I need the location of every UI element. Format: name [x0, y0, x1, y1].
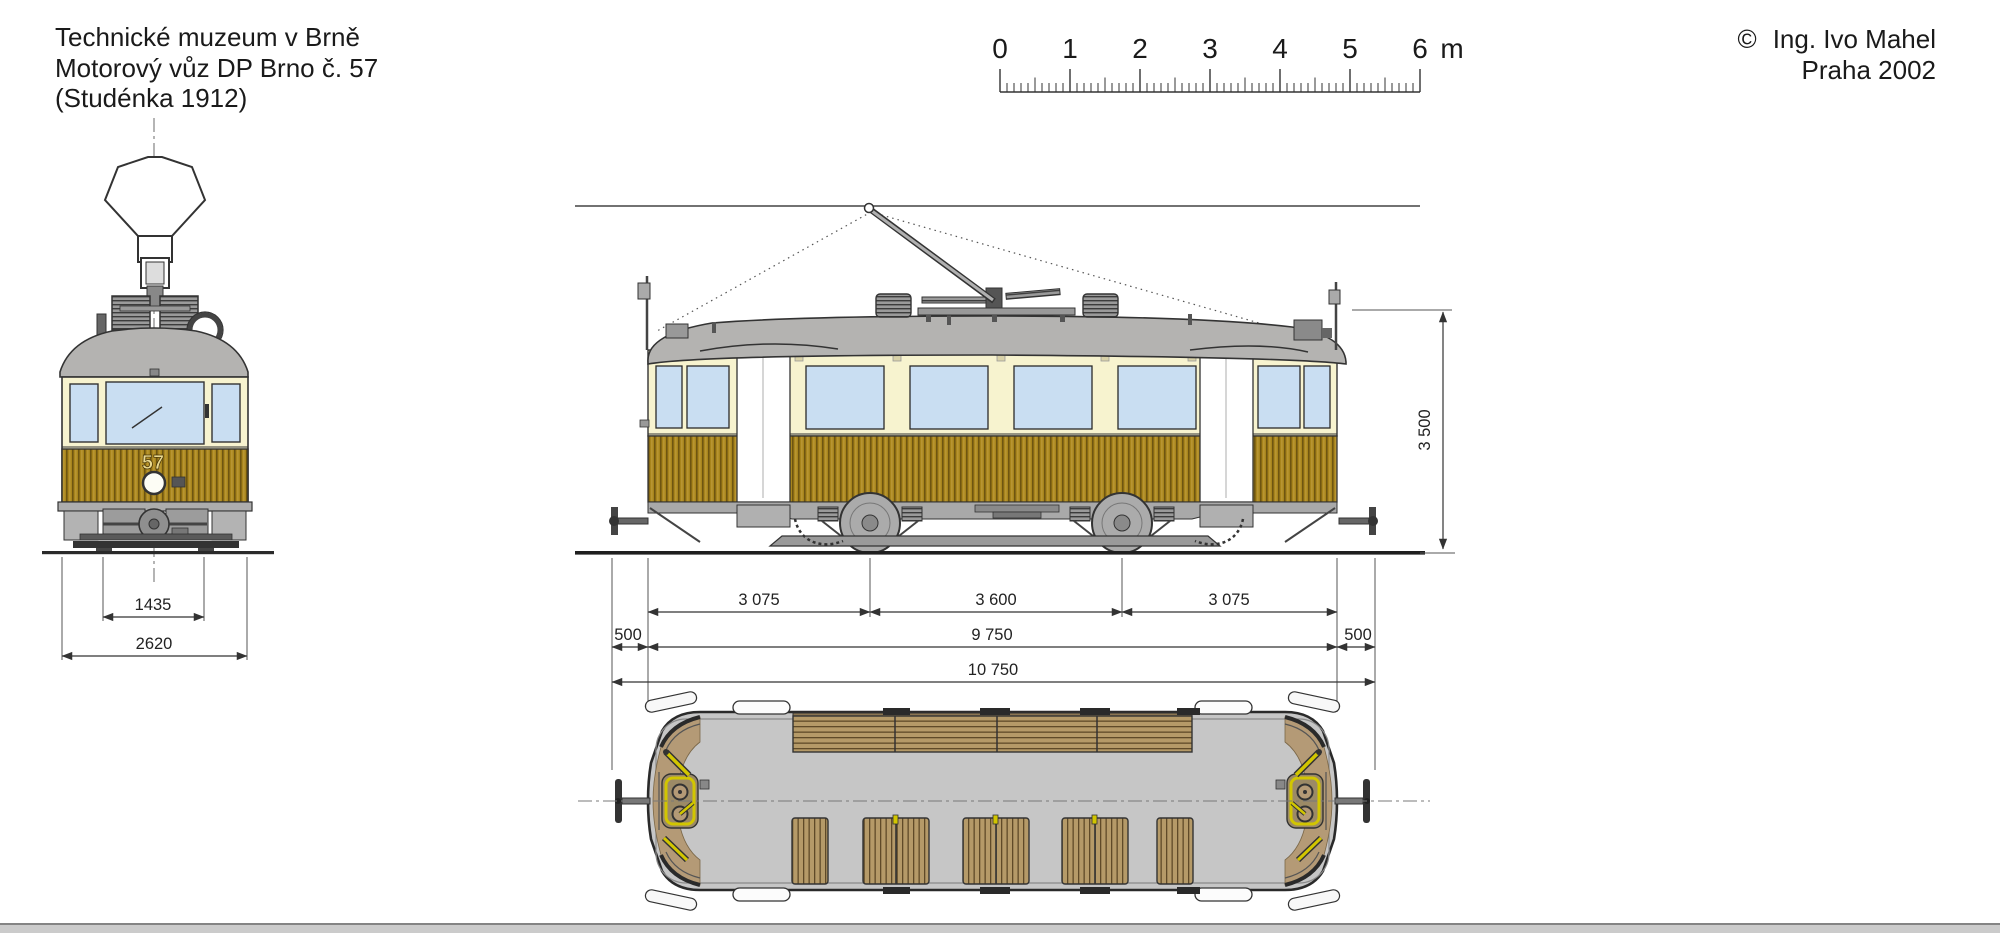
front-trolley-pole [105, 157, 205, 330]
ruler-unit: m [1440, 33, 1463, 64]
door-step-right [1200, 505, 1253, 527]
ruler-label-0: 0 [992, 33, 1008, 64]
dim-body-length: 9 750 [971, 626, 1012, 644]
door-handle [205, 404, 209, 418]
dim-coupling-left: 500 [614, 626, 642, 644]
ruler-label-3: 3 [1202, 33, 1218, 64]
front-windows [70, 382, 240, 444]
trolley-rope-left [657, 212, 871, 331]
corner-fender [644, 889, 697, 912]
stanchion-clip [1092, 815, 1097, 824]
jumper-socket [640, 420, 649, 427]
dim-track-gauge: 1435 [135, 596, 172, 614]
stanchion-clip [893, 815, 898, 824]
dim-height: 3 500 [1416, 409, 1434, 450]
ruler-ticks [1000, 69, 1420, 92]
trolley-wheel [865, 204, 874, 213]
sliding-door-leaf [733, 701, 790, 714]
trolley-pole [865, 204, 995, 302]
dim-rear-overhang: 3 075 [1208, 591, 1249, 609]
front-view: 57 [42, 118, 274, 582]
ruler-label-5: 5 [1342, 33, 1358, 64]
side-view [575, 204, 1425, 555]
dim-total-length: 10 750 [968, 661, 1018, 679]
side-doorway-left [737, 351, 790, 502]
height-dimension: 3 500 [1352, 310, 1455, 553]
door-step-left [737, 505, 790, 527]
rail-line [575, 551, 1425, 555]
scale-ruler: 0 1 2 3 4 5 6 m [992, 33, 1463, 92]
ruler-label-2: 2 [1132, 33, 1148, 64]
dim-coupling-right: 500 [1344, 626, 1372, 644]
front-ground-line [42, 551, 274, 554]
dim-front-overhang: 3 075 [738, 591, 779, 609]
front-undercarriage [64, 509, 246, 552]
stanchion-clip [993, 815, 998, 824]
window-bottom-edge [0, 923, 2000, 933]
ruler-label-4: 4 [1272, 33, 1288, 64]
tram-drawing: 0 1 2 3 4 5 6 m [0, 0, 2000, 933]
dim-body-width: 2620 [136, 635, 173, 653]
plan-view [578, 691, 1430, 912]
front-headlight [143, 472, 165, 494]
ruler-label-6: 6 [1412, 33, 1428, 64]
plan-bench-long [793, 713, 1192, 752]
track-skid [770, 536, 1220, 546]
front-roof-knob [150, 369, 159, 376]
fleet-number: 57 [142, 452, 164, 474]
side-doorway-right [1200, 351, 1253, 502]
ruler-label-1: 1 [1062, 33, 1078, 64]
corner-fender [644, 691, 697, 714]
drawing-sheet: Technické muzeum v Brně Motorový vůz DP … [0, 0, 2000, 933]
sliding-door-leaf [733, 888, 790, 901]
dim-wheelbase: 3 600 [975, 591, 1016, 609]
front-plate [172, 477, 185, 487]
floor-pedal [700, 780, 709, 789]
